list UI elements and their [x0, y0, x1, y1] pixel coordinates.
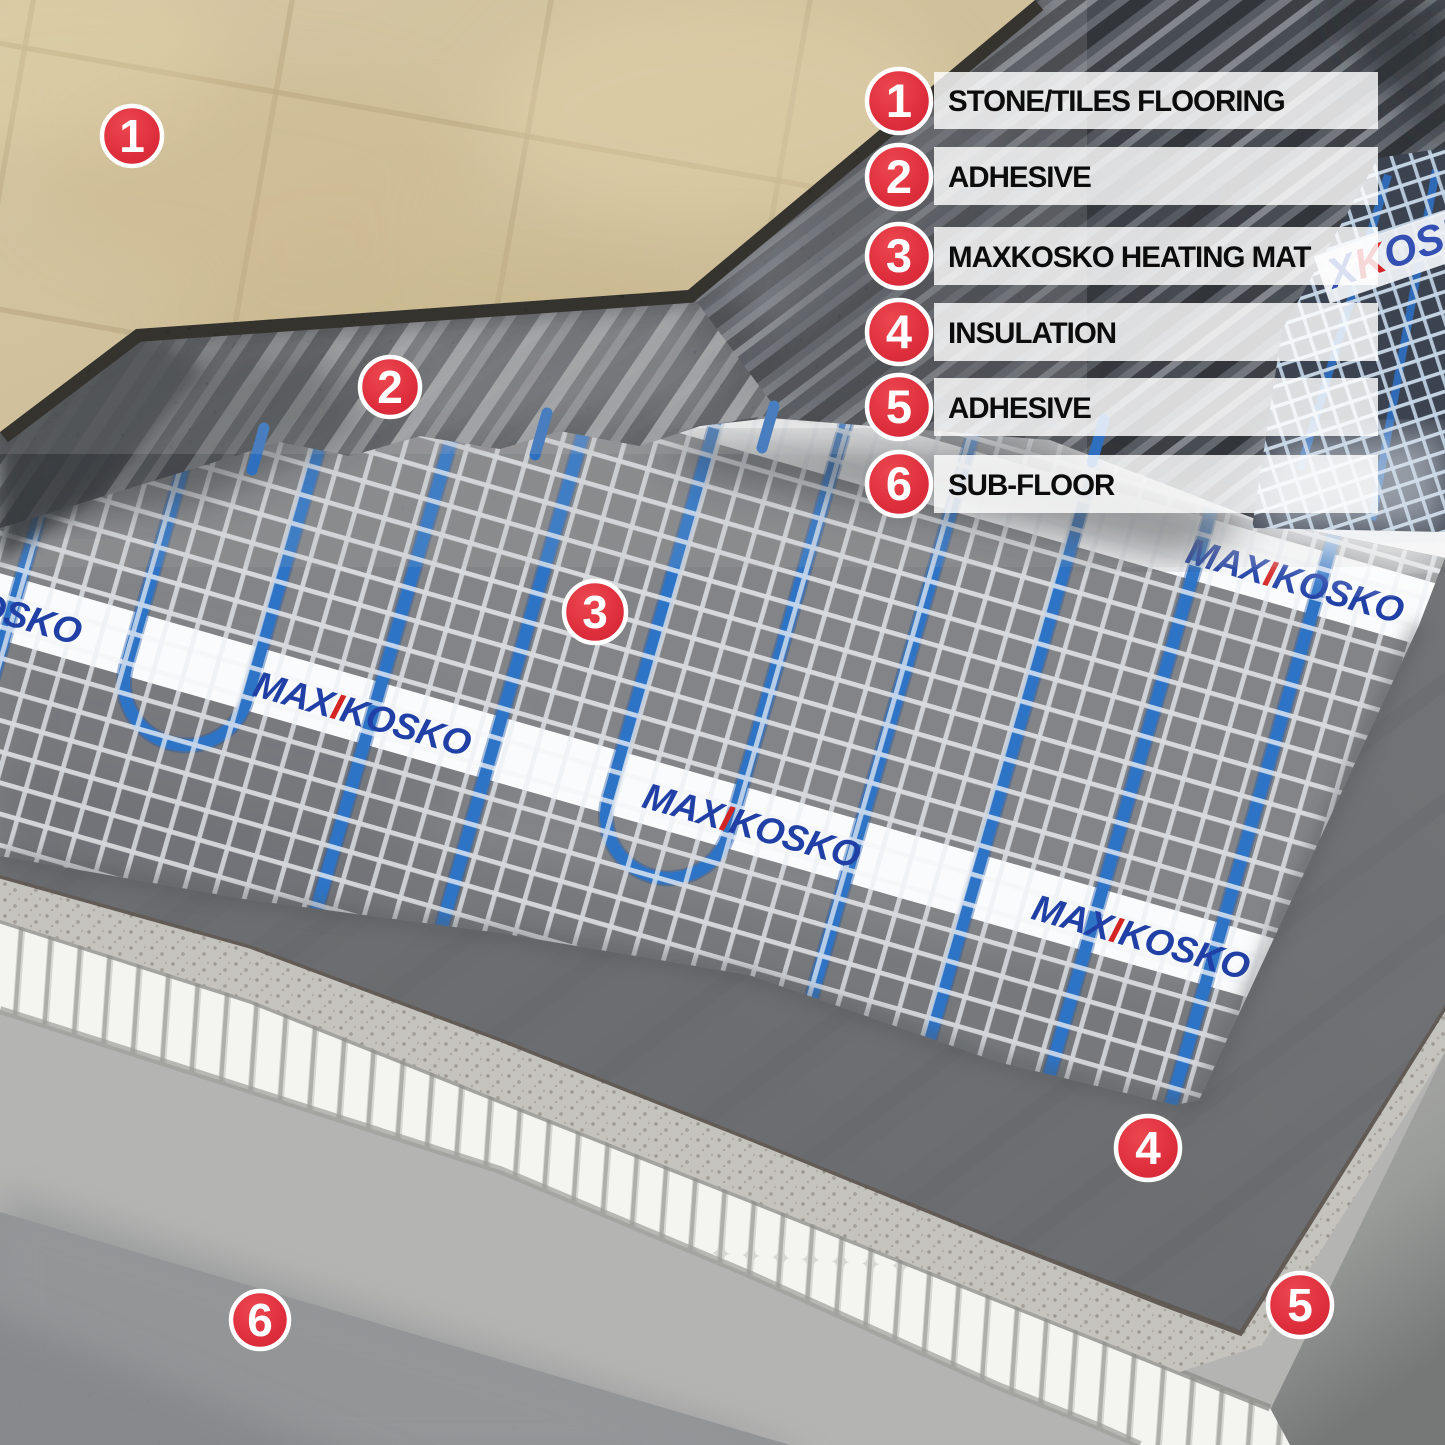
svg-text:ADHESIVE: ADHESIVE — [948, 392, 1091, 425]
svg-text:5: 5 — [1287, 1279, 1313, 1331]
svg-text:1: 1 — [119, 110, 145, 162]
svg-text:6: 6 — [247, 1294, 273, 1346]
svg-text:3: 3 — [886, 229, 912, 282]
svg-text:INSULATION: INSULATION — [948, 317, 1116, 350]
svg-text:4: 4 — [886, 305, 912, 358]
svg-text:2: 2 — [377, 361, 403, 413]
svg-text:MAXKOSKO HEATING MAT: MAXKOSKO HEATING MAT — [948, 241, 1311, 274]
svg-text:2: 2 — [886, 150, 912, 203]
svg-text:ADHESIVE: ADHESIVE — [948, 161, 1091, 194]
svg-text:SUB-FLOOR: SUB-FLOOR — [948, 469, 1115, 502]
svg-text:6: 6 — [886, 457, 912, 510]
svg-text:STONE/TILES FLOORING: STONE/TILES FLOORING — [948, 85, 1285, 118]
svg-text:3: 3 — [582, 586, 608, 638]
svg-text:4: 4 — [1135, 1122, 1161, 1174]
svg-text:5: 5 — [886, 380, 912, 433]
svg-text:1: 1 — [886, 74, 912, 127]
